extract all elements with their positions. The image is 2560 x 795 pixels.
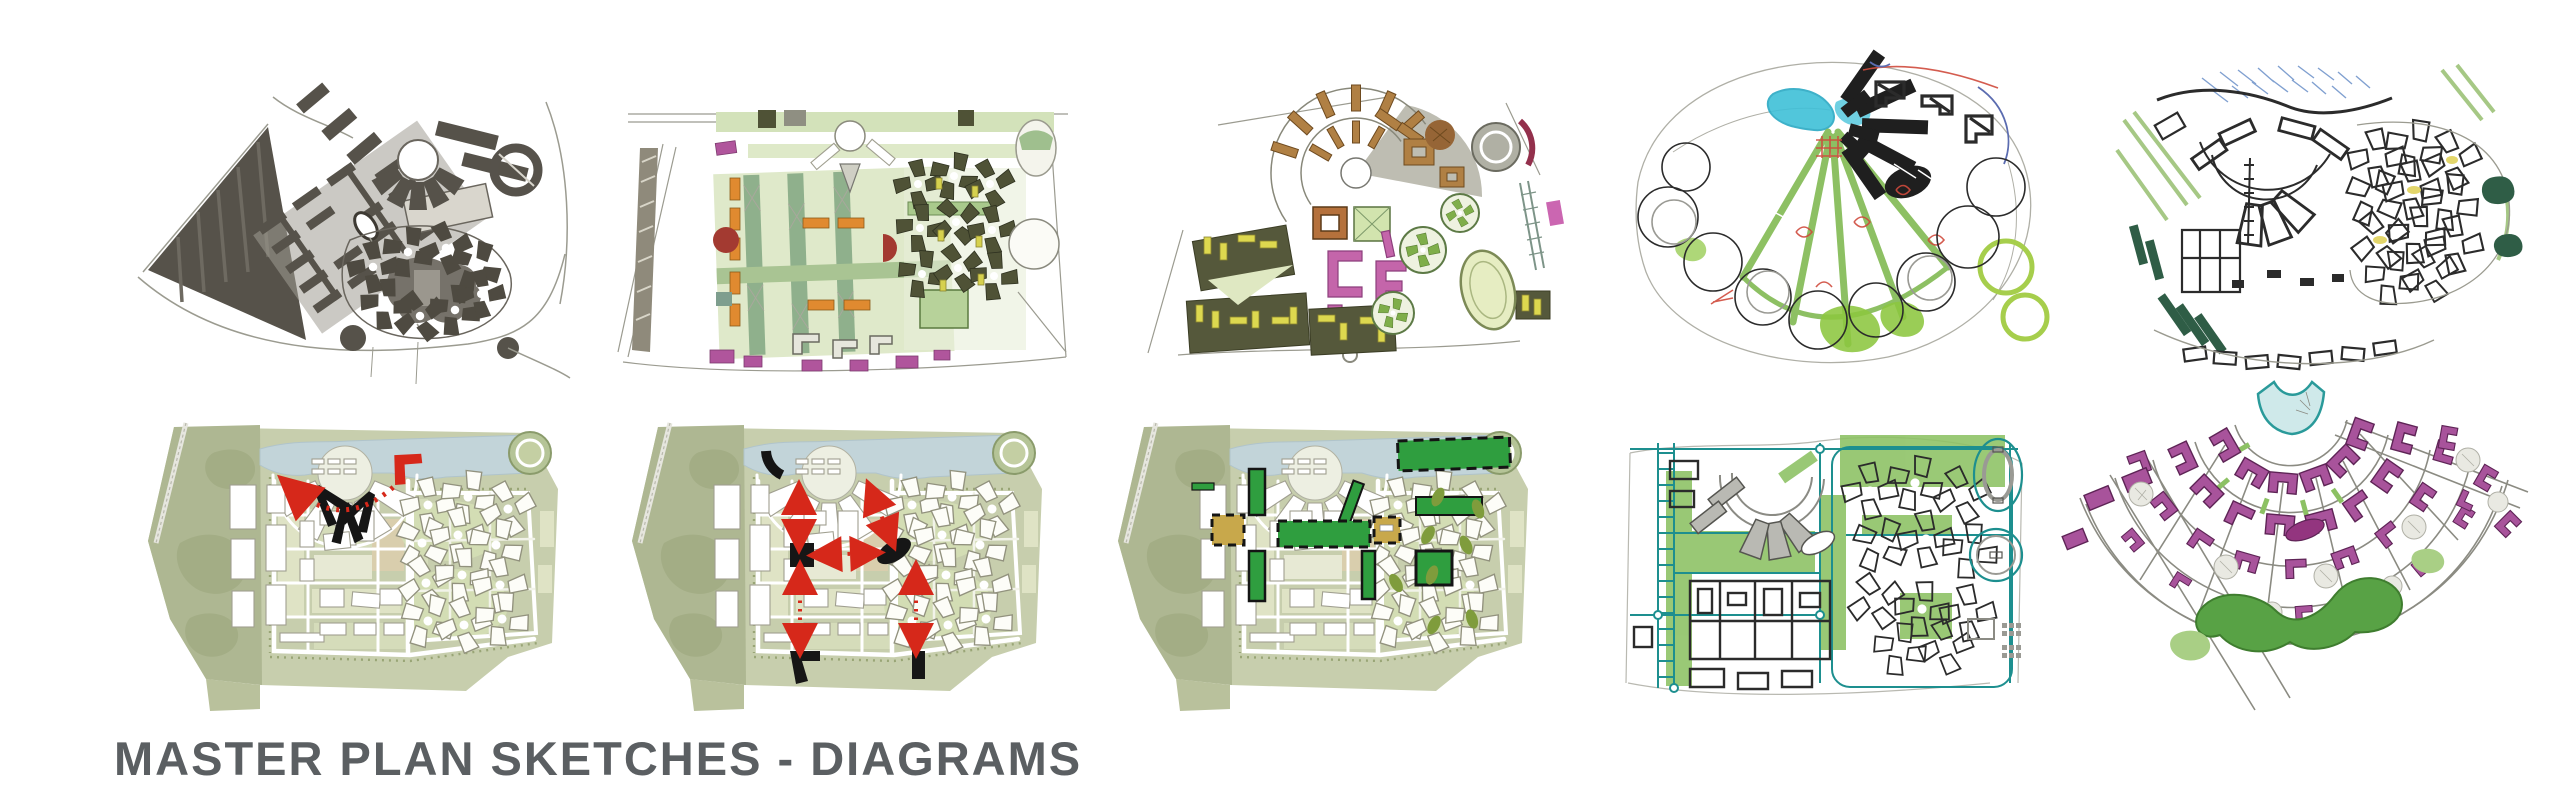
presentation-board: MASTER PLAN SKETCHES - DIAGRAMS bbox=[0, 0, 2560, 795]
sketch-panel-color-study-2 bbox=[1088, 55, 1576, 385]
diagram-panel-red-arc bbox=[110, 393, 592, 717]
sketch-panel-pen-concept bbox=[1578, 32, 2064, 392]
sketch-panel-ink-masterplan bbox=[2062, 30, 2544, 392]
page-title: MASTER PLAN SKETCHES - DIAGRAMS bbox=[114, 731, 1082, 786]
diagram-panel-teal-framework bbox=[1570, 383, 2054, 721]
diagram-panel-purple-fan bbox=[2050, 380, 2542, 722]
diagram-panel-connection-arrows bbox=[594, 393, 1076, 717]
diagram-panel-green-open-spaces bbox=[1080, 393, 1562, 717]
sketch-panel-color-study-1 bbox=[598, 52, 1090, 388]
sketch-panel-figure-ground bbox=[118, 42, 573, 387]
